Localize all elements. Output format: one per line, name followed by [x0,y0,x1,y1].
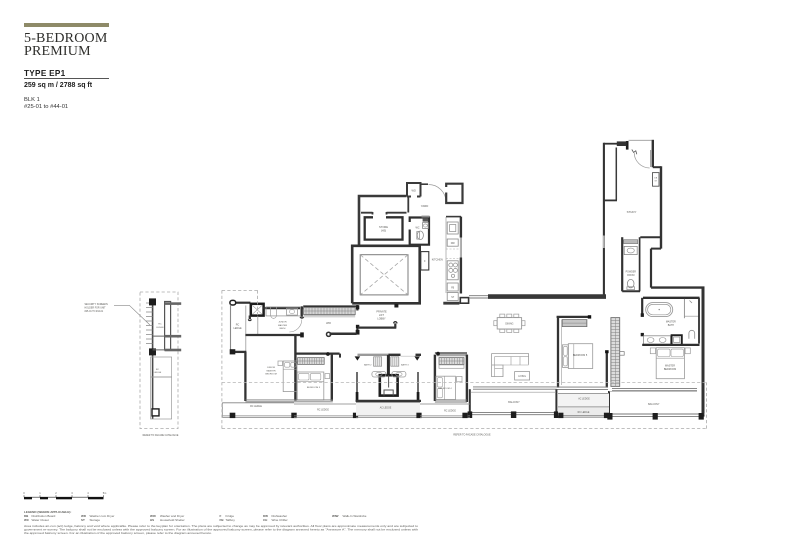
svg-text:BEDROOM: BEDROOM [664,368,676,371]
svg-text:#25-01 TO #44-01: #25-01 TO #44-01 [85,311,104,313]
svg-text:HS: HS [150,518,154,522]
svg-text:WC: WC [24,518,30,522]
svg-text:RC LEDGE: RC LEDGE [578,412,590,414]
svg-text:F: F [424,260,426,263]
svg-text:WD: WD [412,189,416,193]
svg-text:RC: RC [156,369,160,371]
svg-text:MASTER: MASTER [278,324,288,327]
svg-text:RC LEDGE: RC LEDGE [444,411,456,413]
svg-text:5m: 5m [103,491,107,495]
svg-text:the approved balcony screen. F: the approved balcony screen. For an illu… [24,531,212,535]
svg-text:DW: DW [451,242,456,245]
svg-text:CH: CH [263,518,267,522]
svg-text:ST: ST [451,297,455,299]
svg-text:BATH: BATH [280,327,286,330]
svg-text:(HS): (HS) [381,229,386,233]
svg-text:BEDROOM 5: BEDROOM 5 [573,354,588,357]
svg-text:RC LEDGE: RC LEDGE [250,406,262,408]
svg-text:WC: WC [416,227,420,230]
svg-text:1: 1 [39,491,41,495]
svg-text:DINING: DINING [505,323,513,325]
svg-text:LOBBY: LOBBY [377,318,386,321]
svg-text:Tallboy: Tallboy [226,518,236,522]
svg-text:LEDGE: LEDGE [233,327,242,330]
svg-text:BATH: BATH [668,324,674,327]
svg-text:4: 4 [87,491,89,495]
svg-text:KITCHEN: KITCHEN [432,259,443,262]
svg-text:STORE: STORE [379,225,388,229]
svg-text:BEDROOM 4: BEDROOM 4 [438,388,452,390]
svg-text:ROOM: ROOM [627,275,634,277]
svg-text:LIVING: LIVING [518,376,526,378]
svg-text:YARD: YARD [421,204,429,208]
svg-text:JUNIOR: JUNIOR [278,322,287,324]
svg-text:0: 0 [23,491,25,495]
svg-text:RC: RC [158,324,162,326]
svg-text:BEDROOM 3: BEDROOM 3 [307,387,321,389]
svg-text:FB: FB [451,287,454,289]
svg-text:3: 3 [71,491,73,495]
svg-text:STUDY: STUDY [627,210,637,214]
svg-text:BEDROOM: BEDROOM [265,374,276,376]
svg-text:Household Shelter: Household Shelter [160,518,185,522]
svg-text:BALCONY: BALCONY [508,401,520,404]
svg-text:WIR: WIR [326,322,331,325]
svg-text:LEDGE: LEDGE [154,372,162,374]
svg-text:DB: DB [654,178,657,180]
svg-text:REFER TO FACADE CATALOGUE: REFER TO FACADE CATALOGUE [453,433,491,436]
svg-text:LEDGE: LEDGE [156,327,164,329]
svg-text:RC LEDGE: RC LEDGE [317,410,329,412]
svg-text:SECURITY SCREENS: SECURITY SCREENS [85,304,109,306]
svg-text:Storage: Storage [90,518,101,522]
svg-text:JUNIOR: JUNIOR [267,367,276,369]
svg-text:REFER TO FACADE CATALOGUE: REFER TO FACADE CATALOGUE [143,434,179,437]
svg-text:WIW: WIW [332,514,339,518]
svg-text:BATH 2: BATH 2 [364,363,372,366]
svg-text:BALCONY: BALCONY [648,403,660,406]
svg-text:FB: FB [220,518,225,522]
svg-text:Wine Chiller: Wine Chiller [272,518,288,522]
svg-text:HOLDER FOR UNIT: HOLDER FOR UNIT [85,307,107,309]
svg-text:AC LEDGE: AC LEDGE [380,407,392,410]
svg-text:ST: ST [81,518,85,522]
svg-text:ST: ST [655,181,658,183]
svg-text:Walk-In Wardrobe: Walk-In Wardrobe [343,514,367,518]
svg-text:POWDER: POWDER [626,272,637,274]
svg-text:AC LEDGE: AC LEDGE [578,397,590,400]
svg-text:Water Closet: Water Closet [32,518,49,522]
svg-text:2: 2 [55,491,57,495]
svg-text:MASTER: MASTER [266,369,276,372]
svg-text:BATH 3: BATH 3 [401,363,409,366]
